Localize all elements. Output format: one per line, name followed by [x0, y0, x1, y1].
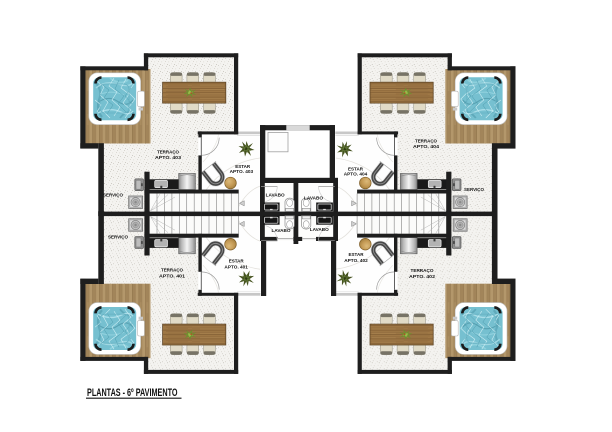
svg-text:APTO. 403: APTO. 403: [155, 155, 181, 160]
svg-text:SERVIÇO: SERVIÇO: [464, 187, 484, 192]
svg-text:LAVABO: LAVABO: [266, 193, 285, 198]
svg-text:LAVABO: LAVABO: [304, 196, 323, 201]
svg-text:LAVABO: LAVABO: [310, 227, 329, 232]
svg-text:APTO. 403: APTO. 403: [230, 169, 254, 174]
svg-text:ESTAR: ESTAR: [349, 252, 365, 257]
svg-text:APTO. 401: APTO. 401: [159, 273, 185, 278]
svg-text:SERVIÇO: SERVIÇO: [103, 192, 123, 197]
svg-text:APTO. 402: APTO. 402: [344, 258, 368, 263]
svg-text:APTO. 404: APTO. 404: [344, 171, 368, 176]
svg-text:TERRAÇO: TERRAÇO: [161, 268, 183, 273]
svg-text:ESTAR: ESTAR: [229, 259, 245, 264]
svg-text:APTO. 404: APTO. 404: [413, 144, 439, 149]
svg-text:APTO. 402: APTO. 402: [409, 274, 435, 279]
svg-text:TERRAÇO: TERRAÇO: [157, 149, 179, 154]
svg-text:APTO. 401: APTO. 401: [224, 265, 248, 270]
svg-text:TERRAÇO: TERRAÇO: [415, 138, 437, 143]
svg-text:PLANTAS - 6º PAVIMENTO: PLANTAS - 6º PAVIMENTO: [87, 387, 178, 399]
svg-text:LAVABO: LAVABO: [272, 228, 291, 233]
svg-text:SERVIÇO: SERVIÇO: [108, 235, 128, 240]
svg-text:TERRAÇO: TERRAÇO: [411, 268, 434, 273]
